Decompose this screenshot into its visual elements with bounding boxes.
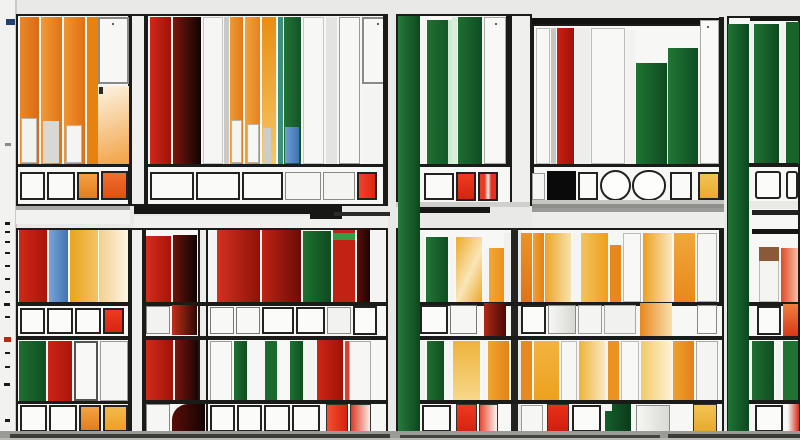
shelf-line	[398, 336, 722, 340]
cubby-box	[548, 305, 576, 334]
shelf-line	[18, 401, 128, 404]
cubby-box-red-fade	[479, 404, 498, 432]
cabinet-door	[98, 17, 129, 84]
cubby-box	[755, 171, 781, 199]
book-front	[43, 121, 59, 163]
book-orange	[533, 233, 544, 302]
cubby-box	[786, 171, 798, 199]
book-teal	[278, 17, 283, 164]
book-gray	[551, 28, 556, 164]
cubby-box	[210, 405, 235, 432]
book-orange	[521, 233, 532, 302]
rail-tick	[5, 278, 10, 280]
cubby-box	[572, 405, 601, 432]
shelf-board	[134, 216, 388, 228]
book-orange	[608, 341, 619, 401]
book-white	[74, 341, 98, 401]
book-white	[100, 341, 128, 401]
cubby-box	[146, 404, 170, 433]
book-white	[561, 341, 577, 401]
frame-divider	[130, 14, 146, 206]
cubby-box-red	[326, 404, 348, 432]
tall-green-book-column	[728, 24, 749, 433]
door-knob	[707, 26, 709, 28]
rail-tick	[4, 383, 10, 386]
book-front	[21, 118, 37, 163]
rail-tick-red	[4, 337, 11, 342]
frame-edge	[383, 16, 388, 204]
book-gold-cream	[579, 341, 606, 401]
book-green	[636, 63, 667, 164]
cubby-box	[521, 305, 546, 334]
book-notch-white	[610, 233, 621, 245]
book-red	[217, 230, 260, 302]
frame-divider	[510, 14, 532, 206]
book-green	[426, 237, 448, 302]
door-knob	[377, 23, 379, 25]
book-gray	[326, 17, 337, 164]
book-green	[19, 341, 46, 401]
book-white	[696, 341, 718, 401]
book-white	[697, 233, 717, 302]
book-front	[231, 120, 242, 163]
cubby-box	[264, 405, 290, 432]
panel-mark	[99, 87, 103, 94]
book-white	[484, 248, 488, 302]
rail-tick	[5, 265, 10, 267]
cubby-box	[196, 172, 240, 200]
book-white	[420, 233, 424, 302]
book-orange	[87, 17, 98, 164]
book-green	[786, 22, 799, 164]
cubby-box-gold	[693, 404, 717, 432]
cubby-box	[578, 305, 602, 334]
book-green	[754, 24, 779, 164]
cubby-box	[757, 306, 781, 335]
book-gold	[581, 233, 608, 302]
cubby-box	[49, 405, 77, 432]
rail-tick	[5, 291, 10, 293]
book-gold-cream	[641, 341, 671, 401]
book-orange	[673, 341, 694, 401]
cubby-box	[422, 405, 451, 432]
book-white	[249, 341, 263, 401]
bay-q-topline2	[752, 229, 798, 234]
gap-dark-line	[420, 207, 490, 213]
book-cap-green	[333, 233, 355, 240]
book-white	[591, 28, 625, 164]
book-red	[557, 28, 574, 164]
cubby-box	[450, 305, 477, 334]
book-red	[146, 340, 173, 401]
cubby-box	[755, 405, 783, 432]
frame-edge	[719, 230, 724, 305]
rail-tick	[4, 303, 10, 306]
cubby-box	[210, 307, 234, 334]
cubby-box-red-sliver	[788, 404, 799, 432]
book-white	[482, 341, 486, 401]
book-front-blue	[285, 127, 299, 163]
book-white	[504, 233, 511, 302]
cubby-box	[47, 308, 73, 334]
book-white	[484, 17, 506, 164]
book-gold	[453, 341, 480, 401]
bay-d-shelf	[534, 164, 722, 167]
cubby-box	[636, 405, 670, 432]
cubby-box-orange	[101, 171, 128, 200]
rail-tick	[5, 231, 10, 233]
cubby-box	[292, 405, 320, 432]
cubby-box	[146, 306, 170, 334]
cubby-box-black	[547, 171, 576, 201]
book-white	[421, 17, 426, 164]
cubby-box	[20, 405, 47, 432]
rail-tick	[5, 352, 10, 354]
door-knob	[112, 23, 114, 25]
book-white	[575, 28, 590, 164]
cubby-box-red	[547, 404, 569, 432]
book-stripe-lightgreen	[452, 17, 457, 164]
book-front	[247, 124, 259, 163]
cubby-box-gold	[698, 172, 720, 200]
cubby-box-red-fade	[350, 404, 371, 432]
cubby-box	[604, 305, 636, 334]
book-white	[372, 231, 386, 302]
shelf-shadow-line	[752, 210, 798, 215]
book-green	[303, 231, 331, 302]
cubby-box	[237, 405, 262, 432]
book-red	[48, 341, 72, 401]
book-gold	[456, 237, 482, 302]
rail-tick	[5, 419, 10, 422]
cubby-box	[150, 172, 194, 200]
gap-dark-line	[334, 212, 390, 216]
round-container	[632, 170, 666, 201]
rail-tick	[5, 366, 10, 368]
round-container	[600, 170, 631, 201]
book-white	[536, 28, 550, 164]
book-white	[203, 17, 223, 164]
cubby-box	[323, 172, 355, 200]
cubby-box	[327, 307, 351, 334]
cubby-box-red	[357, 172, 377, 200]
book-red	[150, 17, 171, 164]
cubby-box	[242, 172, 283, 200]
cubby-box-red	[103, 308, 124, 334]
rail-tick	[5, 241, 10, 243]
book-white	[210, 232, 216, 302]
corner-mark	[6, 19, 15, 25]
book-gold	[70, 230, 98, 302]
book-front	[263, 128, 271, 163]
cubby-box	[353, 306, 377, 335]
rail-tick	[5, 316, 10, 318]
book-green	[668, 48, 698, 164]
cubby-box	[262, 307, 294, 334]
book-green	[290, 341, 303, 401]
cubby-box-darkred	[172, 305, 197, 335]
cubby-box-orange-fade	[640, 303, 672, 336]
cubby-box-orange	[77, 172, 99, 200]
cubby-box-darkred	[484, 303, 506, 336]
tall-green-book-column	[398, 16, 420, 433]
book-white	[700, 20, 719, 164]
book-gray	[224, 17, 229, 164]
book-cap-brown	[759, 247, 779, 261]
cubby-box	[47, 172, 75, 200]
glow-panel	[98, 86, 129, 164]
cubby-box	[521, 405, 543, 432]
book-orange	[521, 341, 532, 401]
frame-divider	[130, 228, 144, 433]
shelf-board	[532, 212, 724, 228]
rail-tick	[5, 222, 10, 225]
book-white	[210, 341, 232, 401]
book-white	[626, 30, 635, 164]
bay-a-shelf	[18, 164, 128, 167]
book-white	[303, 17, 324, 164]
book-gold-cream	[545, 233, 571, 302]
book-white	[621, 341, 639, 401]
book-red	[333, 230, 355, 302]
cubby-box	[236, 307, 260, 334]
door-knob	[495, 23, 497, 25]
book-white	[339, 17, 360, 164]
box-notch-white	[605, 404, 612, 411]
bay-q-topline	[750, 17, 800, 21]
book-cream	[99, 230, 128, 302]
cubby-box-orange	[783, 304, 798, 336]
cubby-box-red	[456, 404, 477, 432]
cubby-box-orange	[79, 405, 101, 432]
book-maroon	[173, 235, 197, 302]
book-orange	[610, 245, 621, 302]
book-red	[19, 230, 47, 302]
book-white	[623, 233, 641, 302]
cubby-box-gold	[103, 405, 128, 432]
book-white	[573, 233, 580, 302]
book-green	[783, 341, 798, 401]
book-front	[66, 125, 82, 163]
book-red-fade	[781, 248, 798, 302]
book-gold	[488, 341, 509, 401]
cubby-box	[20, 172, 45, 200]
cubby-box-red	[456, 172, 476, 201]
gap-dark-bar	[134, 204, 330, 214]
book-white	[776, 341, 781, 401]
book-red	[146, 236, 171, 302]
book-green	[427, 341, 444, 401]
cubby-box	[20, 308, 45, 334]
cubby-box	[532, 173, 545, 200]
book-gold-cream	[643, 233, 672, 302]
cubby-box	[578, 172, 598, 200]
bookshelf-scene	[0, 0, 800, 440]
rail-tick	[5, 143, 11, 146]
rail-tick	[5, 252, 10, 254]
shelf-line	[18, 302, 128, 306]
book-maroon	[357, 229, 370, 302]
book-orange	[674, 233, 695, 302]
cubby-box	[697, 305, 717, 334]
book-green	[458, 17, 482, 164]
book-white	[421, 341, 425, 401]
book-white	[446, 341, 451, 401]
cubby-box	[424, 173, 454, 200]
book-maroon	[175, 340, 198, 401]
shelf-board	[16, 210, 130, 224]
book-white	[781, 22, 785, 164]
book-white	[305, 341, 315, 401]
cubby-box-red-striped	[478, 172, 498, 201]
cubby-box	[296, 307, 325, 334]
book-green	[234, 341, 247, 401]
bay-b-shelf	[148, 164, 386, 167]
cubby-box	[670, 172, 692, 200]
dark-vase-shape	[172, 404, 205, 433]
book-green	[265, 341, 277, 401]
book-white	[349, 341, 371, 401]
cubby-box	[285, 172, 321, 200]
book-red	[262, 230, 301, 302]
cubby-box	[75, 308, 101, 334]
book-white	[450, 237, 454, 302]
shelf-line	[18, 336, 128, 340]
book-gold	[534, 341, 559, 401]
cubby-box	[420, 305, 448, 334]
book-red	[317, 340, 343, 401]
wall-left-rail	[0, 0, 16, 440]
book-green	[752, 341, 774, 401]
book-white	[279, 341, 288, 401]
book-maroon	[173, 17, 201, 164]
book-blue	[49, 230, 68, 302]
